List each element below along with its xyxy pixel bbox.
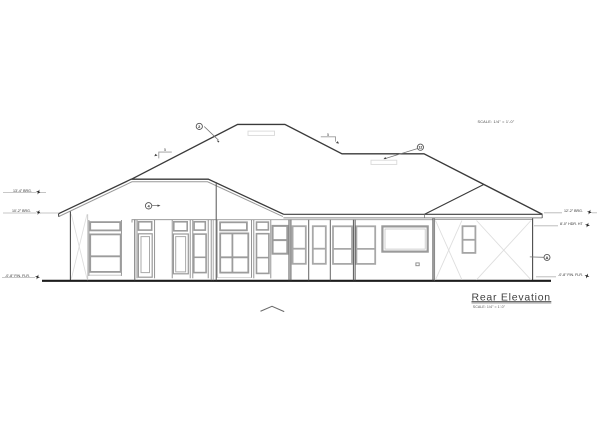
svg-text:SCALE: 1/4" = 1'-0": SCALE: 1/4" = 1'-0" (473, 305, 506, 309)
svg-text:5: 5 (164, 148, 166, 152)
svg-text:SCALE: 1/4" = 1'-0": SCALE: 1/4" = 1'-0" (478, 120, 515, 124)
svg-text:12'-2" BRG.: 12'-2" BRG. (564, 209, 583, 213)
svg-text:4: 4 (147, 203, 150, 208)
svg-text:12: 12 (418, 146, 422, 150)
svg-text:2: 2 (198, 124, 201, 129)
svg-text:10'-2" BRG.: 10'-2" BRG. (12, 209, 31, 213)
svg-text:-0'-8" FIN. FLR.: -0'-8" FIN. FLR. (5, 274, 30, 278)
svg-text:-0'-8" FIN. FLR.: -0'-8" FIN. FLR. (558, 273, 583, 277)
svg-text:A: A (546, 255, 549, 260)
svg-text:8'-0" HDR. HT: 8'-0" HDR. HT (560, 222, 584, 226)
svg-text:13'-4" BRG.: 13'-4" BRG. (13, 189, 32, 193)
svg-text:5: 5 (327, 133, 329, 137)
